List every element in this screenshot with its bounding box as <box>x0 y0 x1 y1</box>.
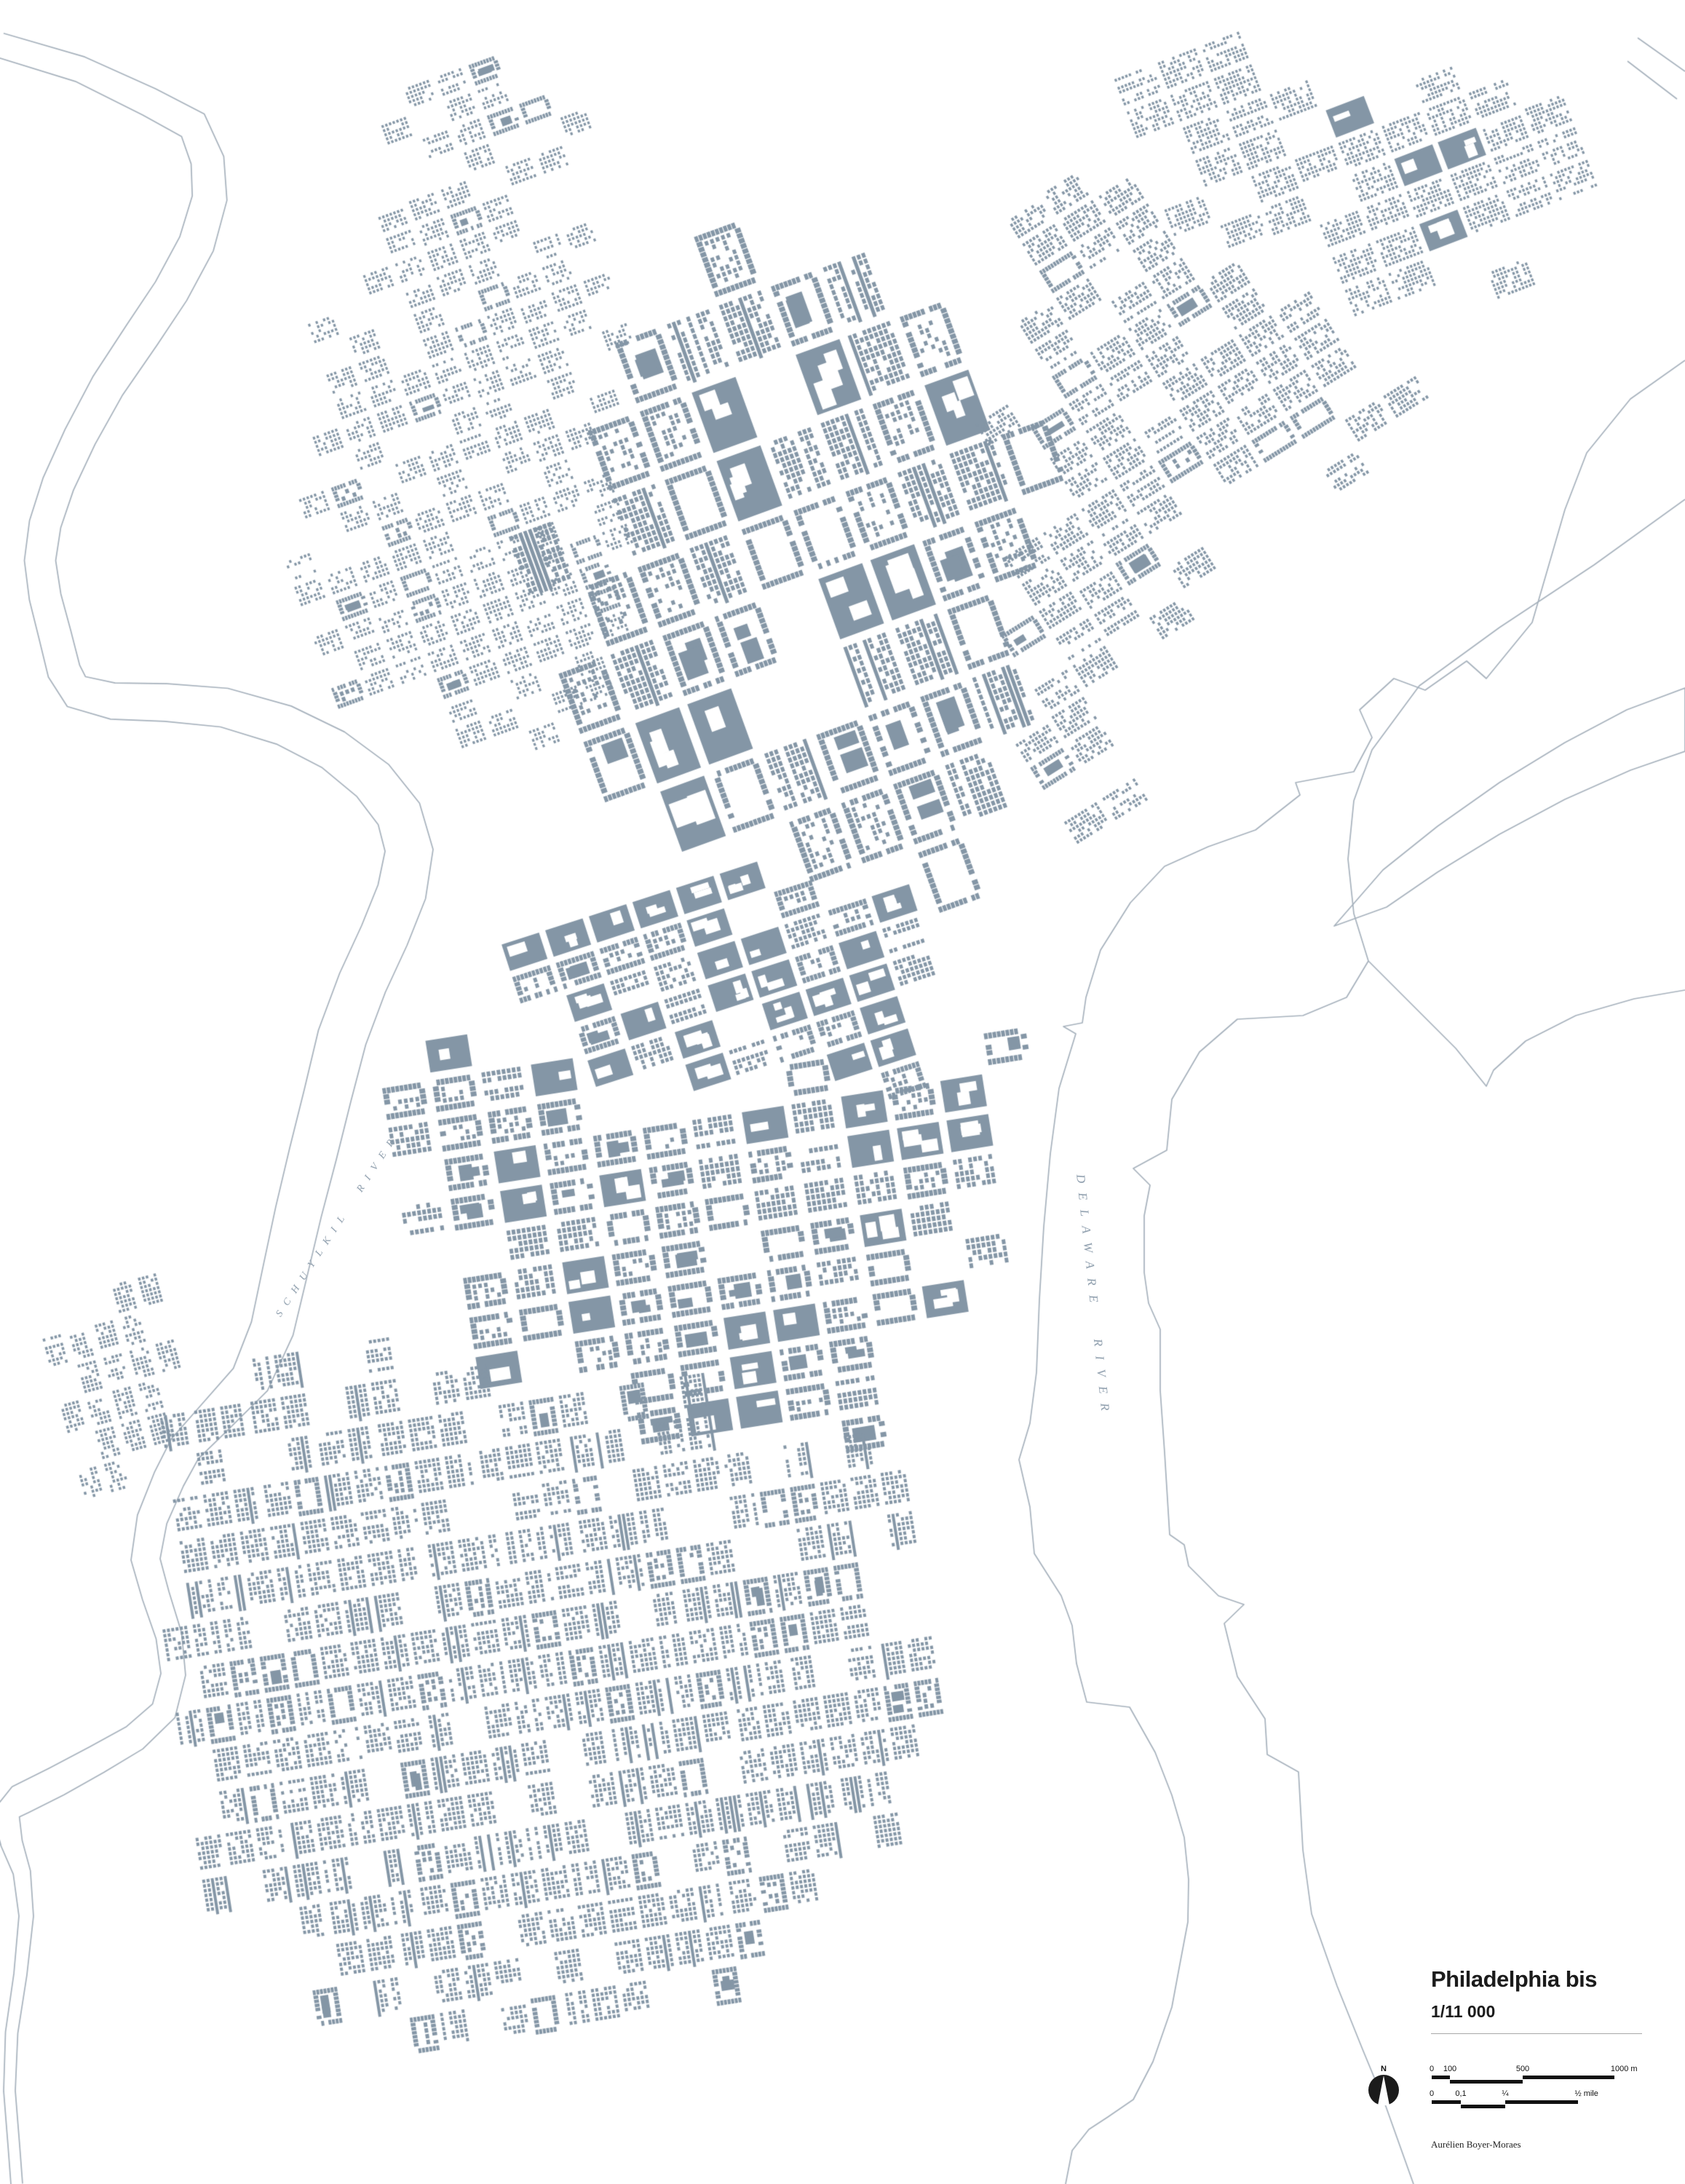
scalebar-tick-label: 100 <box>1443 2065 1456 2073</box>
scalebar-segment <box>1461 2105 1505 2108</box>
scalebar-tick-label: 0,1 <box>1455 2089 1466 2098</box>
scalebar-tick-label: ½ mile <box>1574 2089 1598 2098</box>
scalebar-imperial: 00,1¼½ mile <box>1432 2089 1679 2111</box>
scalebar-segment <box>1523 2076 1614 2079</box>
scalebar-tick-label: 0 <box>1430 2065 1434 2073</box>
scalebar-segment <box>1432 2076 1450 2079</box>
scalebar-segment <box>1505 2100 1578 2104</box>
scalebar-tick-label: ¼ <box>1502 2089 1508 2098</box>
north-arrow-icon <box>1368 2074 1400 2108</box>
scalebar-metric: 01005001000 m <box>1432 2065 1679 2086</box>
scalebar-tick-label: 1000 m <box>1611 2065 1638 2073</box>
figure-ground-map-canvas <box>0 0 1685 2184</box>
scalebar-tick-label: 0 <box>1430 2089 1434 2098</box>
title-divider <box>1431 2033 1642 2034</box>
author-credit: Aurélien Boyer-Moraes <box>1431 2139 1521 2151</box>
map-title: Philadelphia bis <box>1431 1967 1671 1992</box>
scalebar-segment <box>1432 2100 1461 2104</box>
scalebar-segment <box>1450 2080 1523 2084</box>
north-label: N <box>1364 2065 1403 2073</box>
map-scale-ratio: 1/11 000 <box>1431 2002 1671 2022</box>
title-block: Philadelphia bis 1/11 000 <box>1431 1967 1671 2034</box>
north-indicator: N <box>1364 2065 1403 2111</box>
map-poster: { "title": { "name": "Philadelphia bis",… <box>0 0 1685 2184</box>
scalebar-tick-label: 500 <box>1516 2065 1529 2073</box>
